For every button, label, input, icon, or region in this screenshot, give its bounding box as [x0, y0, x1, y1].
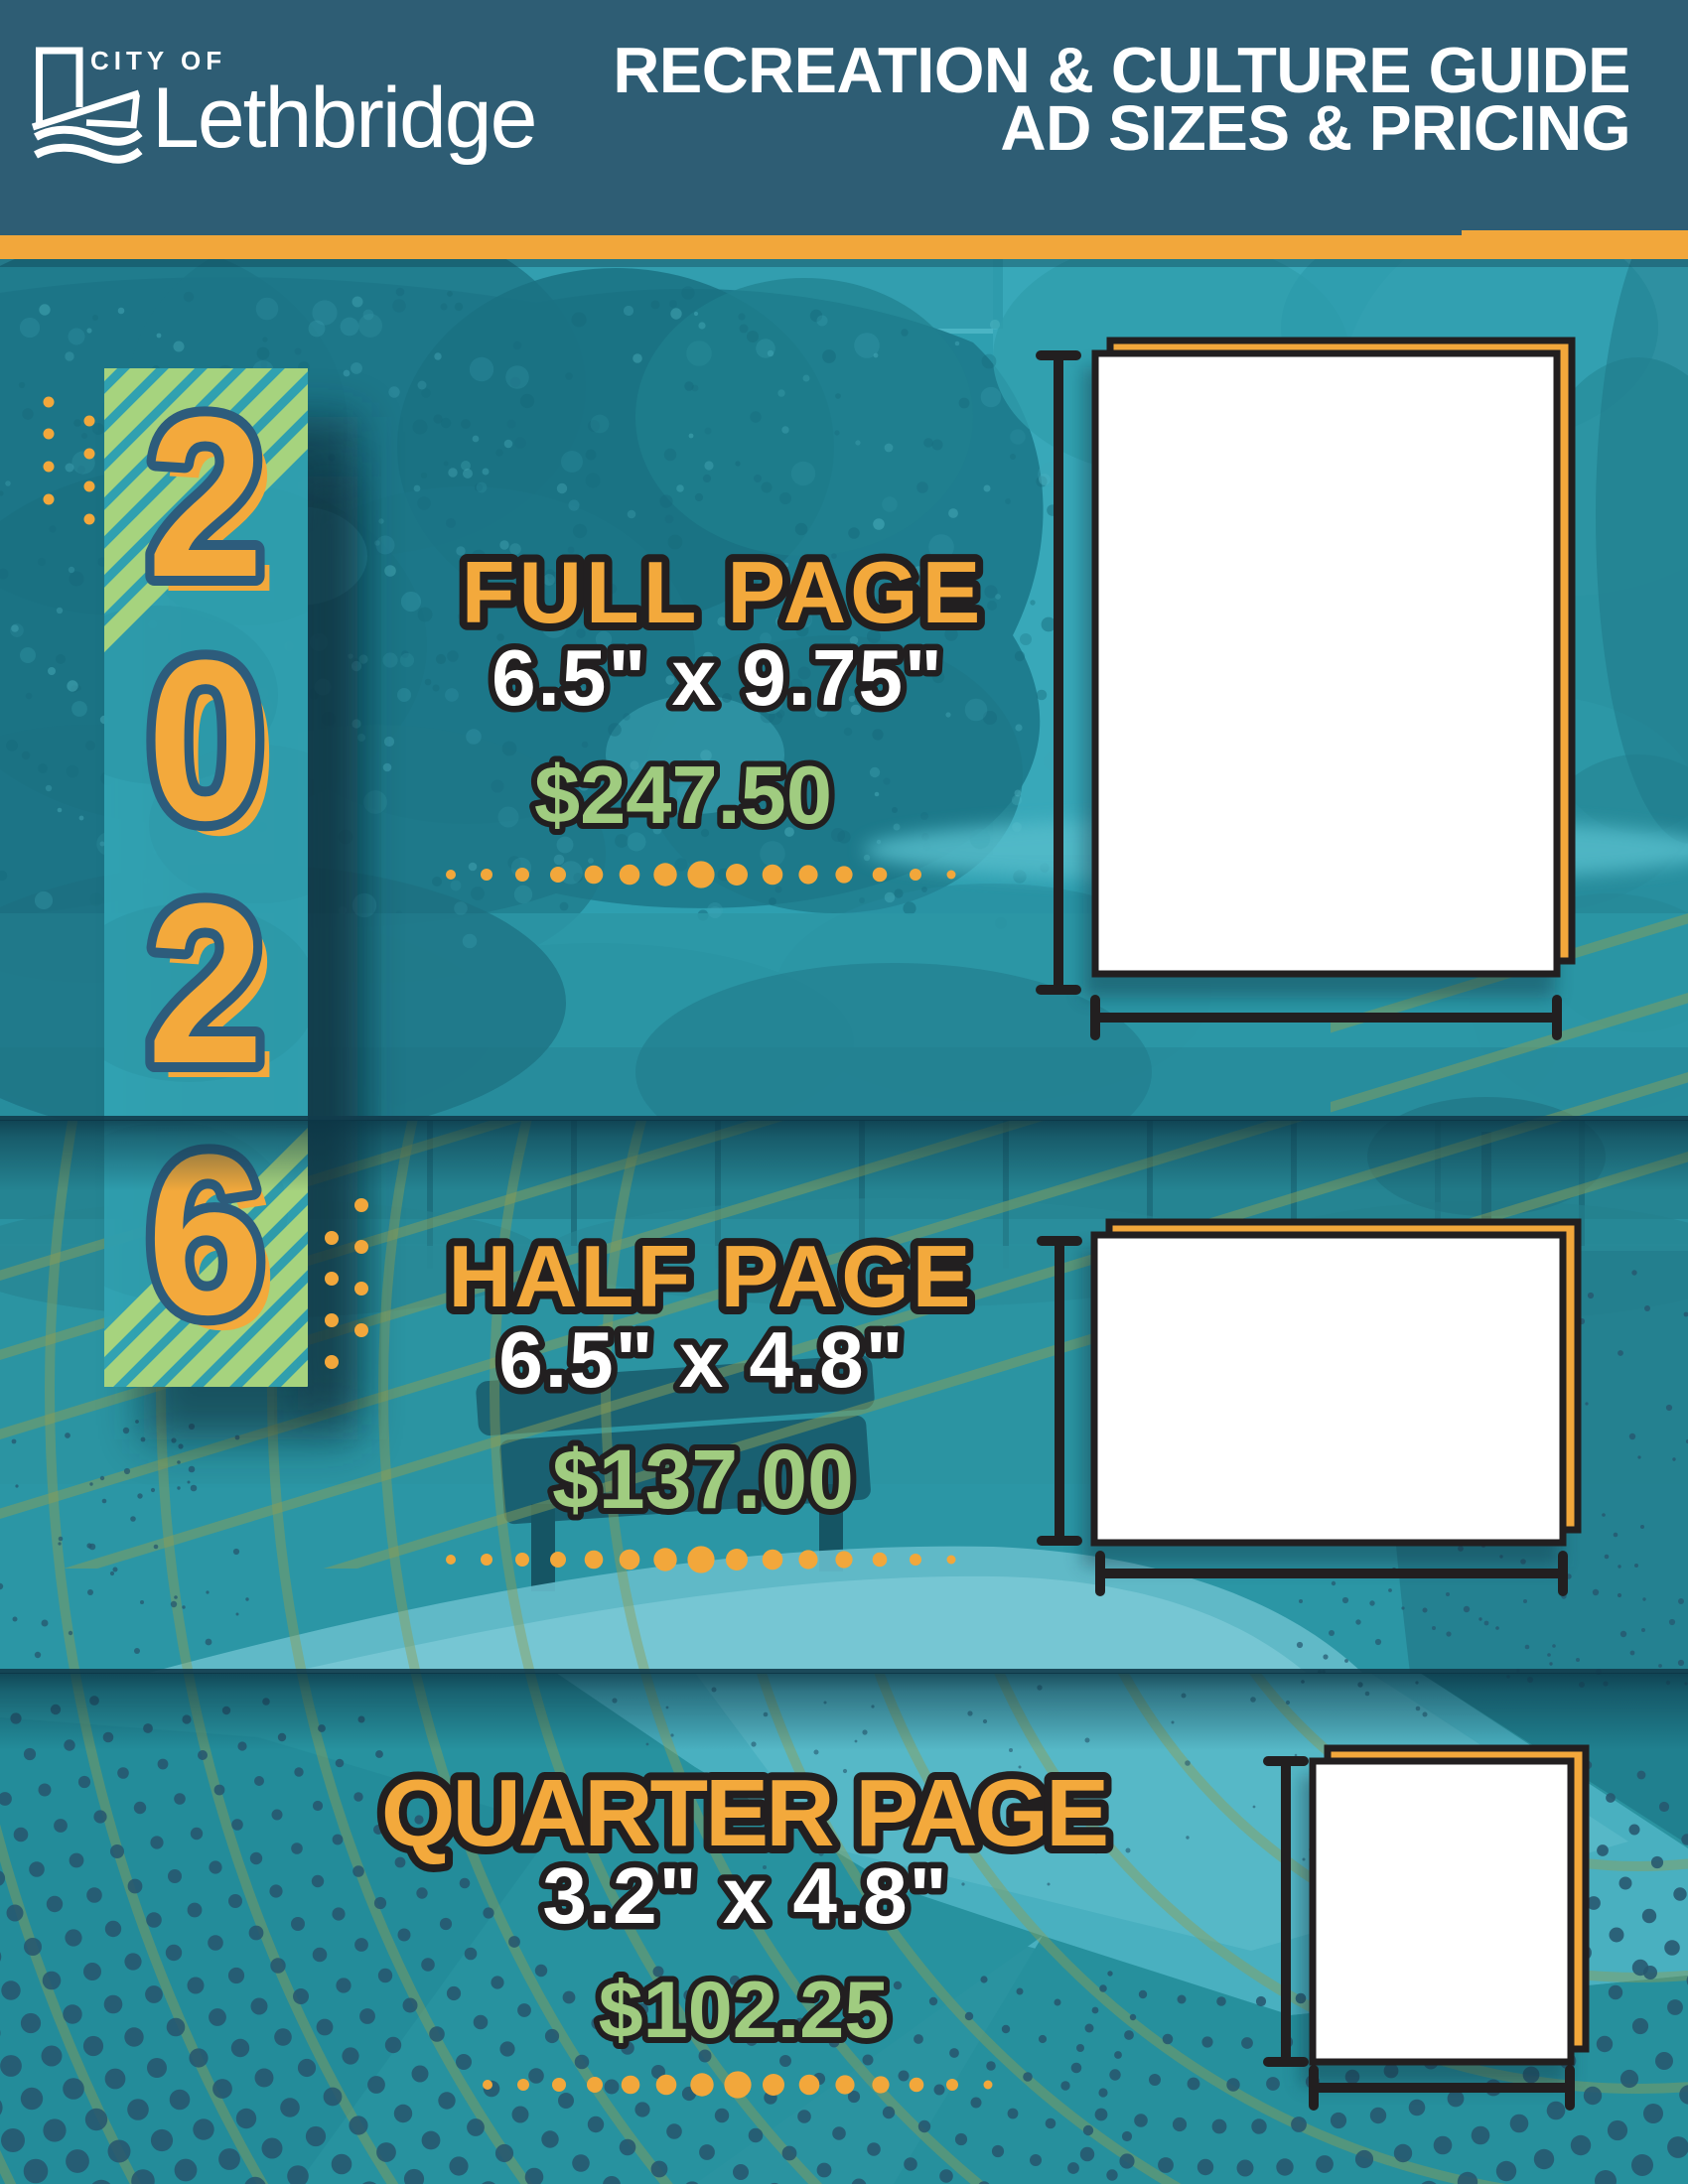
svg-text:2: 2 — [147, 856, 264, 1111]
svg-text:6.5" x 9.75": 6.5" x 9.75" — [492, 633, 944, 722]
svg-text:2: 2 — [147, 369, 264, 624]
svg-text:$102.25: $102.25 — [599, 1966, 890, 2055]
svg-text:0: 0 — [147, 613, 264, 868]
svg-text:QUARTER PAGE: QUARTER PAGE — [381, 1760, 1106, 1866]
svg-text:AD SIZES & PRICING: AD SIZES & PRICING — [1000, 92, 1630, 164]
svg-text:HALF PAGE: HALF PAGE — [449, 1227, 974, 1325]
svg-text:$247.50: $247.50 — [534, 749, 832, 841]
svg-text:3.2" x 4.8": 3.2" x 4.8" — [542, 1851, 948, 1940]
svg-text:Lethbridge: Lethbridge — [152, 70, 535, 166]
svg-text:6.5" x 4.8": 6.5" x 4.8" — [498, 1315, 905, 1404]
svg-text:FULL PAGE: FULL PAGE — [462, 543, 985, 641]
svg-text:$137.00: $137.00 — [552, 1433, 854, 1526]
